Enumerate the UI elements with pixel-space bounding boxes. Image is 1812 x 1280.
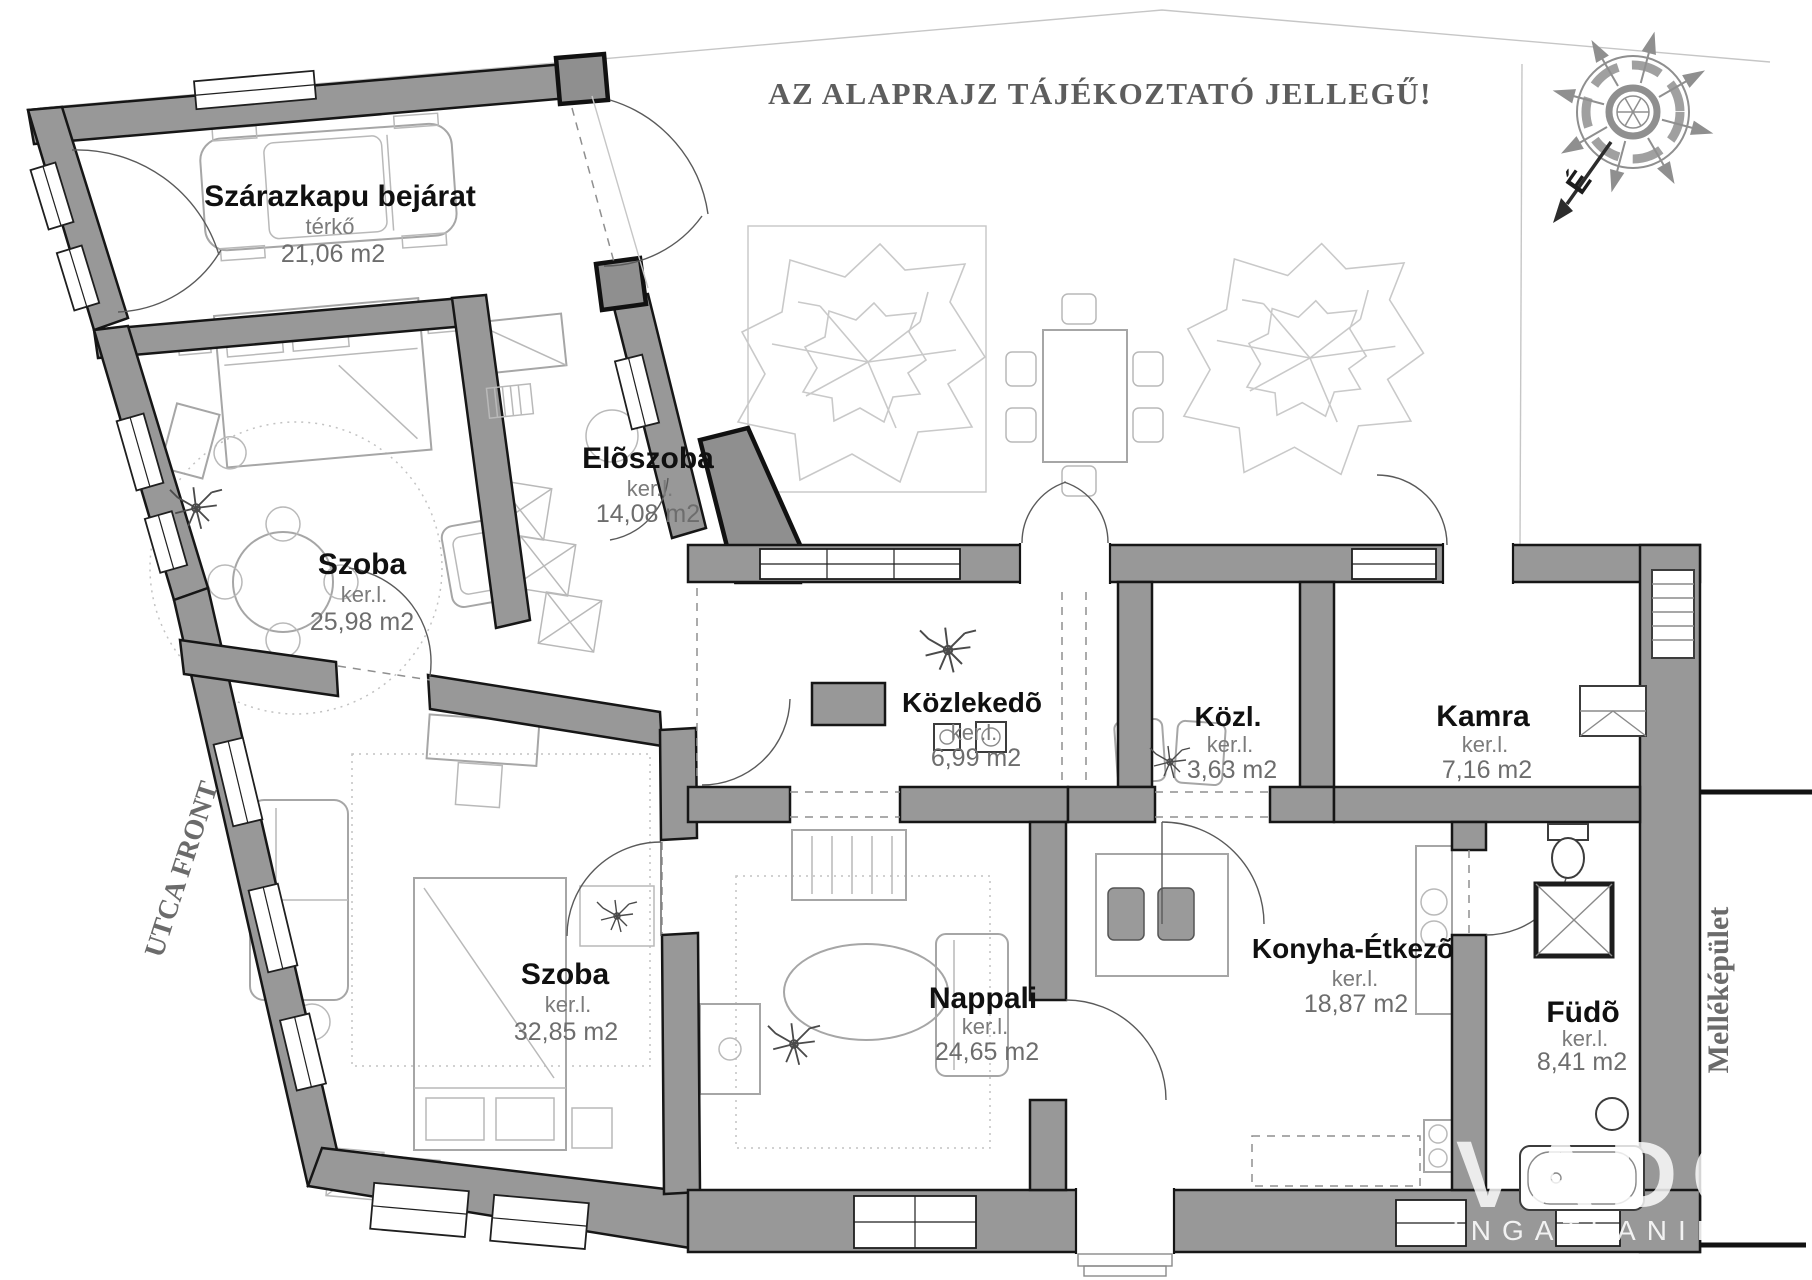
livingroom-table	[784, 944, 948, 1040]
livingroom-piano	[792, 830, 906, 900]
outbuilding-label: Melléképület	[1702, 907, 1735, 1074]
bedroom2-desk	[424, 714, 540, 809]
room-name: Közlekedõ	[902, 687, 1042, 718]
room-finish: ker.l.	[627, 476, 673, 501]
room-name: Szoba	[318, 548, 407, 581]
stairs-icon	[1652, 570, 1694, 658]
room-area: 6,99 m2	[931, 744, 1021, 772]
north-arrow: É	[1553, 142, 1611, 223]
room-finish: térkő	[306, 214, 355, 239]
garden-tree-left	[738, 244, 985, 482]
watermark-logo: VADO	[1456, 1122, 1779, 1228]
street-front-label: UTCA FRONT	[139, 777, 225, 961]
room-label-szarazkapu-bejarat: Szárazkapu bejárat térkő 21,06 m2	[204, 180, 476, 268]
garden-table-set	[1006, 294, 1163, 496]
room-finish: ker.l.	[1207, 732, 1253, 757]
room-finish: ker.l.	[962, 1014, 1008, 1039]
room-label-szoba-1: Szoba ker.l. 25,98 m2	[310, 548, 414, 636]
room-label-konyha-etkezo: Konyha-Étkezõ ker.l. 18,87 m2	[1252, 933, 1454, 1018]
room-name: Szoba	[521, 958, 610, 991]
room-area: 21,06 m2	[281, 240, 385, 268]
room-area: 3,63 m2	[1187, 756, 1277, 784]
room-name: Kamra	[1436, 700, 1530, 733]
room-finish: ker.l.	[341, 582, 387, 607]
compass-rose: É	[1553, 33, 1712, 223]
room-name: Elõszoba	[582, 442, 714, 475]
room-label-nappali: Nappali ker.l. 24,65 m2	[929, 982, 1039, 1066]
room-label-fudo: Füdõ ker.l. 8,41 m2	[1537, 996, 1627, 1076]
room-area: 14,08 m2	[596, 500, 700, 528]
watermark-subtext: INGATLANIR	[1452, 1215, 1728, 1246]
room-name: Közl.	[1195, 701, 1262, 732]
garden-tree-right	[1184, 244, 1424, 475]
disclaimer-text: AZ ALAPRAJZ TÁJÉKOZTATÓ JELLEGŰ!	[768, 76, 1432, 111]
pantry-shelf-icon	[1580, 686, 1646, 736]
room-name: Füdõ	[1546, 996, 1619, 1029]
room-name: Konyha-Étkezõ	[1252, 933, 1454, 964]
room-area: 24,65 m2	[935, 1038, 1039, 1066]
livingroom-tv-cabinet	[700, 1004, 760, 1094]
room-finish: ker.l.	[1462, 732, 1508, 757]
room-label-kamra: Kamra ker.l. 7,16 m2	[1436, 700, 1532, 784]
room-area: 7,16 m2	[1442, 756, 1532, 784]
room-name: Nappali	[929, 982, 1037, 1015]
room-finish: ker.l.	[1332, 966, 1378, 991]
shower	[1536, 884, 1612, 956]
floorplan-page: Szárazkapu bejárat térkő 21,06 m2 Szoba …	[0, 0, 1812, 1280]
room-label-kozl: Közl. ker.l. 3,63 m2	[1187, 701, 1277, 784]
room-label-szoba-2: Szoba ker.l. 32,85 m2	[514, 958, 618, 1046]
room-finish: ker.l.	[545, 992, 591, 1017]
room-area: 18,87 m2	[1304, 990, 1408, 1018]
toilet	[1548, 824, 1588, 878]
room-name: Szárazkapu bejárat	[204, 180, 476, 213]
watermark: VADO INGATLANIR	[1452, 1122, 1779, 1246]
room-area: 25,98 m2	[310, 608, 414, 636]
room-finish: ker.l.	[951, 720, 997, 745]
room-label-kozlekedo: Közlekedõ ker.l. 6,99 m2	[902, 687, 1042, 772]
room-area: 8,41 m2	[1537, 1048, 1627, 1076]
room-area: 32,85 m2	[514, 1018, 618, 1046]
